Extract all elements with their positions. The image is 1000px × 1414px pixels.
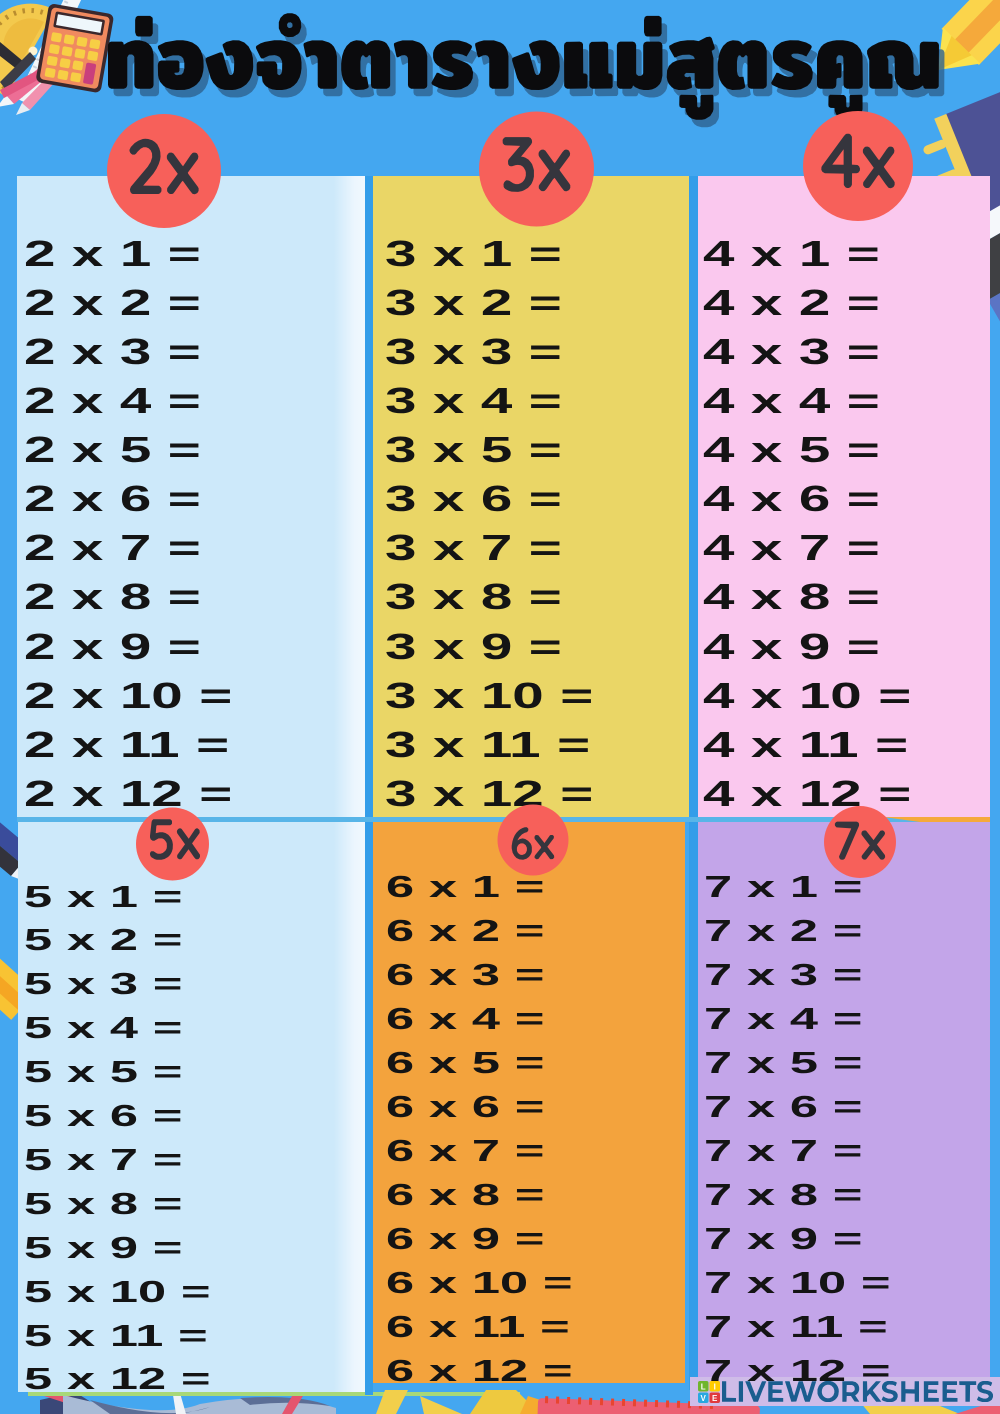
svg-text:V: V bbox=[701, 1394, 707, 1403]
svg-text:E: E bbox=[712, 1394, 718, 1403]
svg-text:L: L bbox=[701, 1383, 706, 1392]
svg-text:I: I bbox=[714, 1383, 716, 1392]
